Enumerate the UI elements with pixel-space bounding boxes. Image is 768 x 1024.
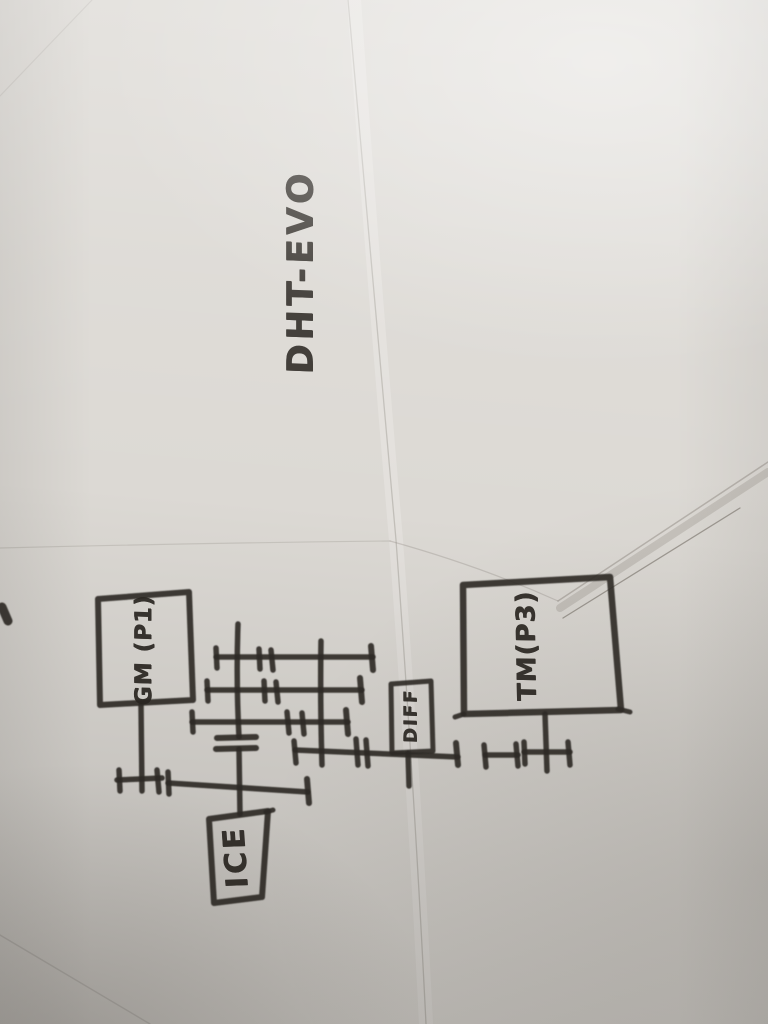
- gear2-mesh-tick-b: [276, 682, 278, 702]
- gear3-mesh-tick-b: [302, 713, 304, 734]
- paper-photo: DHT-EVO GM (P1) ICE DIFF TM(P3): [0, 0, 768, 1024]
- ice-box-label: ICE: [216, 825, 255, 889]
- crease-horizontal-left: [0, 541, 390, 548]
- tm-box-corner-overshoot-left: [455, 714, 464, 717]
- idler-tick-right: [516, 744, 518, 766]
- crease-shadow-right: [560, 472, 768, 608]
- clutch-plate-lower: [216, 748, 256, 749]
- crease-top-left: [0, 0, 92, 96]
- diff-stub: [408, 753, 409, 786]
- tm-shaft-group: [484, 714, 570, 771]
- tm-box-corner-overshoot-right: [618, 709, 630, 712]
- crease-lines: [0, 0, 768, 1024]
- output-mesh-tick-a: [356, 739, 358, 765]
- diagram-title: DHT-EVO: [281, 169, 322, 375]
- hand-drawn-sketch: [0, 0, 768, 1024]
- tm-gear-tick-left: [524, 742, 525, 764]
- gear2-mesh-tick-a: [264, 681, 265, 701]
- gm-gear-tick-right: [157, 770, 159, 792]
- gear1-mesh-tick-a: [259, 649, 260, 669]
- tm-gear-tick-right: [568, 742, 570, 765]
- diff-box-label: DIFF: [401, 689, 422, 744]
- crease-highlight: [354, 0, 426, 1024]
- big-gear-tick-left: [168, 772, 169, 794]
- gear1-end-bar: [371, 646, 373, 670]
- gear1-tick-left: [216, 648, 217, 668]
- big-gear-end-bar: [307, 779, 309, 803]
- gm-p1-box-label: GM (P1): [131, 594, 157, 706]
- gm-shaft-and-gear: [117, 705, 162, 792]
- ice-box-corner-overshoot: [266, 810, 273, 812]
- ice-shaft-group: [168, 737, 309, 814]
- gear2-tick-left: [207, 681, 208, 701]
- output-end-bar: [456, 743, 458, 765]
- gear2-end-bar: [360, 678, 362, 702]
- output-tick-left: [294, 741, 296, 763]
- countershaft: [321, 641, 322, 765]
- ice-shaft: [239, 749, 240, 814]
- input-shaft-group: [192, 624, 373, 737]
- gm-gear-tick-left: [119, 770, 120, 791]
- stray-edge-mark: [2, 607, 8, 621]
- tm-shaft: [545, 714, 547, 771]
- gear3-mesh-tick-a: [287, 712, 289, 733]
- idler-tick-left: [484, 745, 486, 767]
- crease-bottom-left: [0, 935, 150, 1024]
- tm-p3-box-label: TM(P3): [511, 590, 543, 701]
- gear1-mesh-tick-b: [271, 650, 273, 670]
- gear3-tick-left: [192, 712, 193, 732]
- thin-scratch-line: [563, 508, 740, 618]
- output-mesh-tick-b: [366, 740, 368, 766]
- gear3-end-bar: [346, 710, 348, 734]
